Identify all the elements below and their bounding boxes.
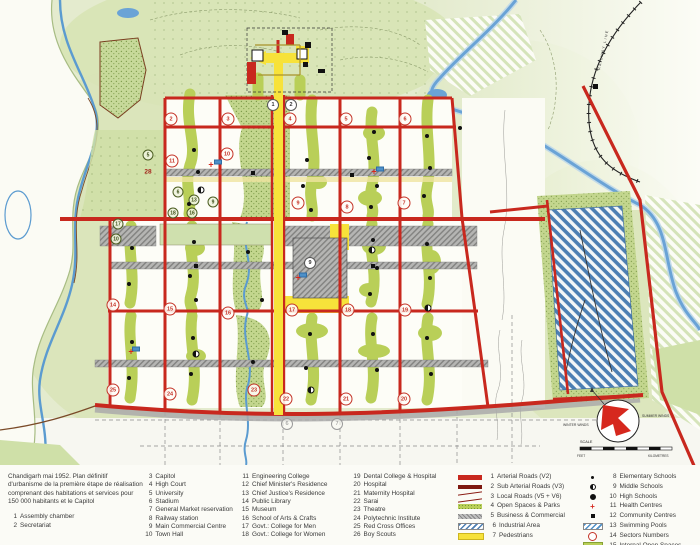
dot-s-glyph (581, 474, 605, 481)
legend-item-5: 5University (143, 490, 240, 498)
legend-symbol-types: 8Elementary Schools9Middle Schools10High… (581, 465, 700, 545)
legend-items-3-10: 3Capitol4High Court5University6Stadium7G… (143, 465, 240, 545)
legend-road-item-6: 6Industrial Area (458, 522, 580, 530)
legend-item-4: 4High Court (143, 481, 240, 489)
legend-symbol-item-9: 9Middle Schools (581, 483, 700, 491)
plan-title: Chandigarh mai 1952. Plan définitif d'ur… (8, 473, 143, 506)
map-legend: Chandigarh mai 1952. Plan définitif d'ur… (0, 465, 700, 545)
svg-text:WINTER WINDS: WINTER WINDS (563, 423, 589, 427)
legend-item-11: 11Engineering College (240, 473, 352, 481)
svg-text:SUMMER WINDS: SUMMER WINDS (642, 414, 670, 418)
dot-h-glyph (581, 493, 605, 500)
legend-road-item-2: 2Sub Arterial Roads (V3) (458, 483, 580, 491)
legend-symbol-item-13: 13Swimming Pools (581, 522, 700, 530)
legend-symbol-item-10: 10High Schools (581, 493, 700, 501)
legend-item-20: 20Hospital (352, 481, 459, 489)
industrial-area (548, 206, 638, 390)
legend-item-14: 14Public Library (240, 498, 352, 506)
local-swatch (458, 491, 482, 502)
legend-road-item-3: 3Local Roads (V5 + V6) (458, 493, 580, 501)
legend-item-12: 12Chief Minister's Residence (240, 481, 352, 489)
legend-item-23: 23Theatre (352, 506, 459, 514)
svg-text:KILOMETRES: KILOMETRES (648, 454, 669, 458)
legend-symbol-item-8: 8Elementary Schools (581, 473, 700, 481)
legend-item-26: 26Boy Scouts (352, 531, 459, 539)
circle-glyph (581, 533, 605, 540)
pools-glyph (581, 523, 605, 530)
legend-item-22: 22Sarai (352, 498, 459, 506)
legend-items-11-18: 11Engineering College12Chief Minister's … (240, 465, 352, 545)
legend-items-1-2: 1Assembly chamber2Secretariat (8, 513, 143, 530)
legend-item-3: 3Capitol (143, 473, 240, 481)
legend-item-16: 16School of Arts & Crafts (240, 515, 352, 523)
chandigarh-plan-page: RAILWAY LINE (0, 0, 700, 545)
square-glyph (581, 513, 605, 520)
legend-road-item-7: 7Pedestrians (458, 532, 580, 540)
legend-item-2: 2Secretariat (8, 522, 143, 530)
legend-item-13: 13Chief Justice's Residence (240, 490, 352, 498)
legend-item-17: 17Govt.: College for Men (240, 523, 352, 531)
legend-symbol-item-11: +11Health Centres (581, 502, 700, 510)
legend-symbol-item-14: 14Sectors Numbers (581, 532, 700, 540)
legend-road-types: 1Arterial Roads (V2)2Sub Arterial Roads … (458, 465, 580, 545)
arterial-swatch (458, 475, 482, 480)
legend-item-18: 18Govt.: College for Women (240, 531, 352, 539)
cross-glyph: + (581, 503, 605, 510)
legend-item-1: 1Assembly chamber (8, 513, 143, 521)
legend-items-19-26: 19Dental College & Hospital20Hospital21M… (352, 465, 459, 545)
legend-item-24: 24Polytechnic Institute (352, 515, 459, 523)
campus-block (160, 224, 272, 245)
pedestrian-swatch (458, 533, 484, 540)
map-illustration: RAILWAY LINE (0, 0, 700, 465)
legend-item-10: 10Town Hall (143, 531, 240, 539)
legend-item-15: 15Museum (240, 506, 352, 514)
legend-road-item-1: 1Arterial Roads (V2) (458, 473, 580, 481)
business-swatch (458, 514, 482, 519)
legend-road-item-5: 5Business & Commercial (458, 512, 580, 520)
legend-item-19: 19Dental College & Hospital (352, 473, 459, 481)
subarterial-swatch (458, 485, 482, 489)
legend-item-21: 21Maternity Hospital (352, 490, 459, 498)
legend-item-25: 25Red Cross Offices (352, 523, 459, 531)
svg-text:SCALE: SCALE (580, 440, 593, 444)
legend-item-6: 6Stadium (143, 498, 240, 506)
railway-station-marker (593, 84, 598, 89)
legend-item-7: 7General Market reservation (143, 506, 240, 514)
central-axis (274, 56, 283, 415)
legend-item-9: 9Main Commercial Centre (143, 523, 240, 531)
open-swatch (458, 504, 482, 509)
svg-text:FEET: FEET (577, 454, 585, 458)
legend-symbol-item-12: 12Community Centres (581, 512, 700, 520)
legend-item-8: 8Railway station (143, 515, 240, 523)
half-glyph (581, 483, 605, 490)
map-area: RAILWAY LINE (0, 0, 700, 465)
legend-road-item-4: 4Open Spaces & Parks (458, 502, 580, 510)
industrial-swatch (458, 523, 484, 530)
